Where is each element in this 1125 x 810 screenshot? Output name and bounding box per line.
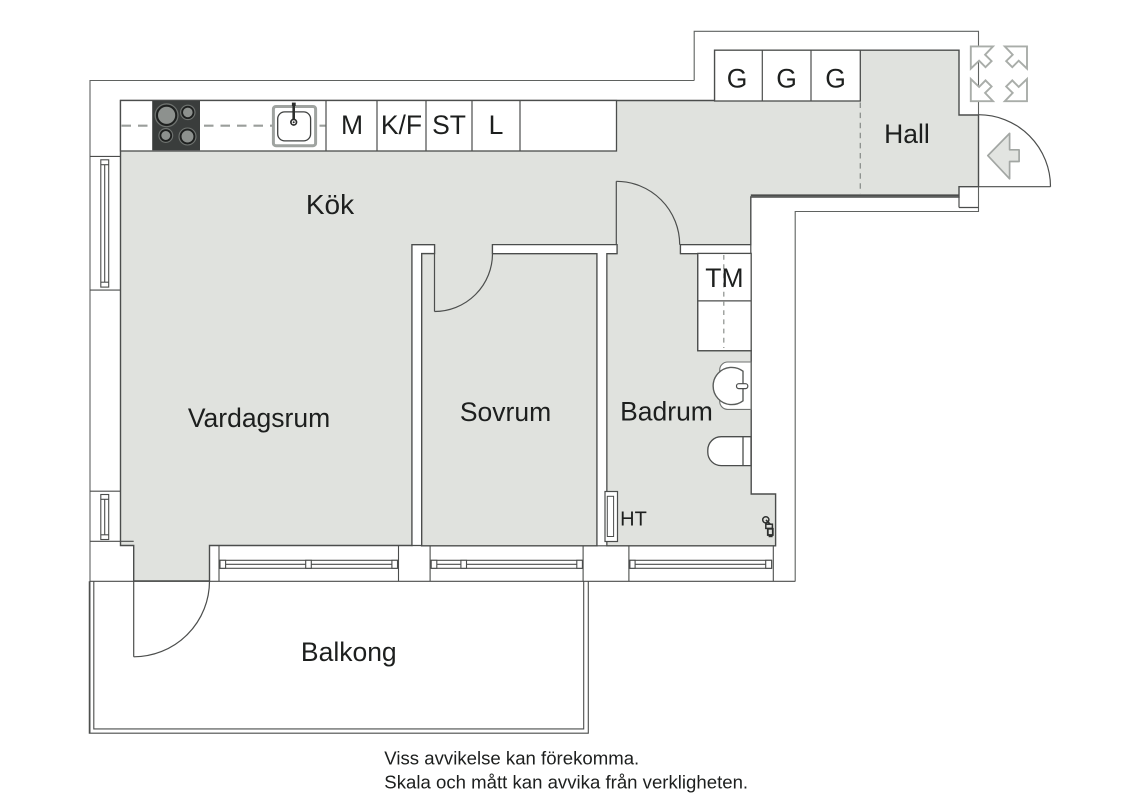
svg-text:Vardagsrum: Vardagsrum xyxy=(188,403,330,433)
svg-text:Skala och mått kan avvika från: Skala och mått kan avvika från verklighe… xyxy=(384,772,748,793)
svg-text:K/F: K/F xyxy=(381,110,422,140)
svg-text:G: G xyxy=(825,64,846,94)
svg-text:Badrum: Badrum xyxy=(620,397,713,427)
svg-text:HT: HT xyxy=(620,508,647,530)
svg-text:Balkong: Balkong xyxy=(301,637,397,667)
svg-text:Viss avvikelse kan förekomma.: Viss avvikelse kan förekomma. xyxy=(384,747,639,768)
svg-text:Hall: Hall xyxy=(884,119,930,149)
svg-text:ST: ST xyxy=(432,110,466,140)
svg-text:TM: TM xyxy=(705,263,743,293)
svg-text:G: G xyxy=(776,64,797,94)
svg-text:M: M xyxy=(341,110,363,140)
svg-text:L: L xyxy=(489,110,504,140)
svg-text:G: G xyxy=(727,64,748,94)
svg-text:Sovrum: Sovrum xyxy=(460,397,551,427)
svg-text:Kök: Kök xyxy=(306,189,355,220)
